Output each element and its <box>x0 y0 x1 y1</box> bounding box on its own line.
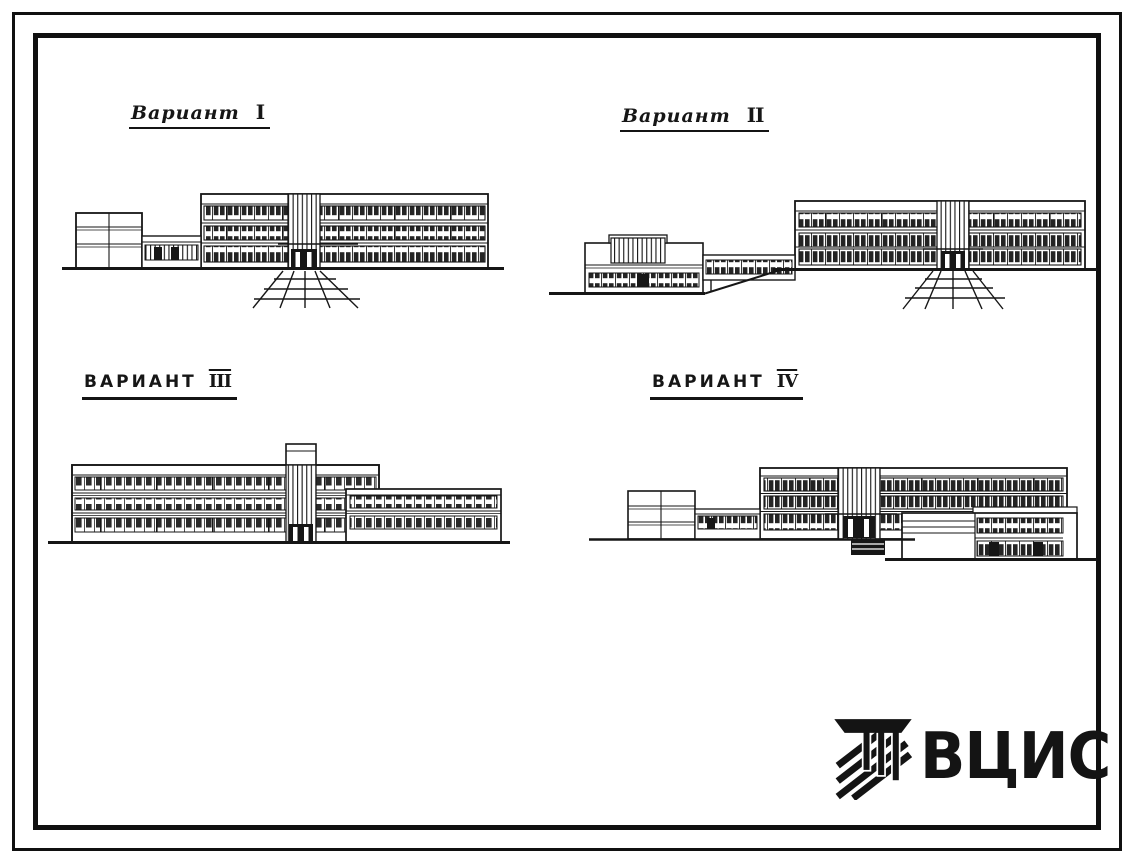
v2-entrance <box>941 251 965 269</box>
v1-connector-wing <box>142 236 201 268</box>
v2-left-block <box>585 235 703 293</box>
v1-plaza-grid <box>253 271 360 308</box>
variant-2-word: Вариант <box>622 105 731 127</box>
variant-4-numeral: IV <box>777 371 797 392</box>
v3-entrance <box>289 524 313 541</box>
variant-1-numeral: I <box>256 100 264 124</box>
v1-left-block <box>76 213 142 268</box>
v4-left-block <box>628 491 695 539</box>
v4-entrance-steps <box>851 539 885 555</box>
v2-plaza-grid <box>903 271 1005 309</box>
variant-4-word: ВАРИАНТ <box>652 372 765 392</box>
v4-right-wing <box>902 507 1077 559</box>
v3-right-wing <box>346 489 501 542</box>
v4-entrance <box>843 516 875 538</box>
logo: ВЦИС <box>834 714 1125 800</box>
variant-3-elevation-drawing <box>44 432 514 552</box>
logo-emblem-icon <box>834 714 912 800</box>
drawing-sheet: Вариант I Вариант II ВАРИАНТ III ВАРИАНТ… <box>0 0 1134 863</box>
variant-4-label: ВАРИАНТ IV <box>650 371 803 400</box>
variant-3-numeral: III <box>209 371 231 392</box>
variant-3-word: ВАРИАНТ <box>84 372 197 392</box>
v2-bridge-connector <box>703 255 795 292</box>
variant-2-elevation-drawing <box>545 185 1105 315</box>
v4-connector-wing <box>695 509 760 539</box>
v1-entrance <box>291 249 317 268</box>
variant-4-elevation-drawing <box>585 446 1105 576</box>
v1-main-block <box>201 194 488 268</box>
variant-2-label: Вариант II <box>620 103 769 132</box>
v3-main-block <box>72 465 379 542</box>
v3-roof-tower <box>286 444 316 465</box>
variant-1-word: Вариант <box>131 102 240 124</box>
variant-3-label: ВАРИАНТ III <box>82 371 237 400</box>
variant-1-elevation-drawing <box>58 186 510 316</box>
variant-2-numeral: II <box>747 103 764 127</box>
logo-text: ВЦИС <box>920 715 1110 799</box>
variant-1-label: Вариант I <box>129 100 270 129</box>
